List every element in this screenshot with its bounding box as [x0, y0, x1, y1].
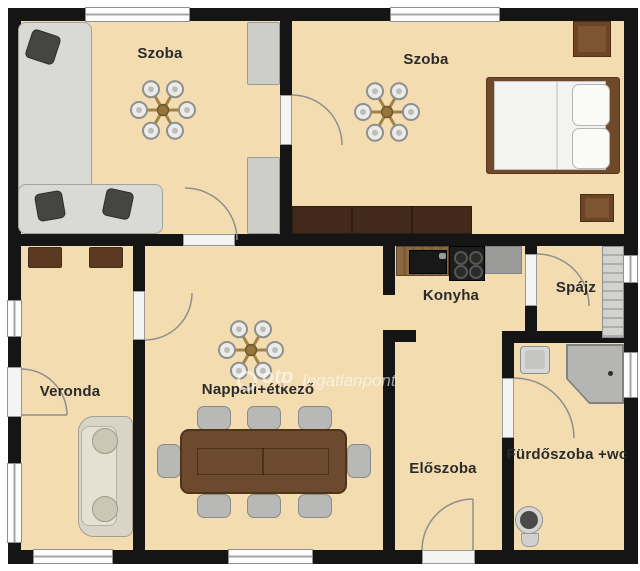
- wardrobe-upper: [247, 22, 280, 85]
- room-label-szoba-2: Szoba: [403, 51, 448, 68]
- wall-veranda-upper: [133, 246, 145, 291]
- wall-bedroom-divider-upper: [280, 21, 292, 95]
- room-label-konyha: Konyha: [423, 287, 479, 304]
- dining-chair: [347, 444, 371, 478]
- dresser-divider: [411, 207, 413, 233]
- veranda-cabinet: [28, 247, 62, 268]
- wardrobe-lower: [247, 157, 280, 234]
- room-label-eloszoba: Előszoba: [409, 460, 476, 477]
- door-leaf-bathroom: [502, 378, 514, 438]
- wall-hall-left: [383, 330, 395, 550]
- pantry-shelf: [602, 246, 624, 338]
- wall-outer-right: [624, 8, 638, 564]
- watermark-logo-icon: [237, 371, 257, 391]
- dining-chair: [247, 494, 281, 518]
- room-label-furdoszoba: Fürdőszoba +wc: [507, 446, 628, 463]
- stove-burner-icon: [454, 251, 468, 265]
- watermark-name: Ingatlanpont: [302, 371, 396, 391]
- door-leaf-pantry: [525, 254, 537, 306]
- stove-burner-icon: [469, 265, 483, 279]
- wall-kitchen-left-upper: [383, 246, 395, 295]
- faucet-icon: [439, 253, 446, 259]
- wall-bathroom-left-upper: [502, 331, 514, 378]
- dining-chair: [197, 494, 231, 518]
- room-label-veronda: Veronda: [40, 383, 101, 400]
- dresser-divider: [351, 207, 353, 233]
- veranda-sofa-pillow: [92, 496, 118, 522]
- watermark-brand: otp: [262, 366, 293, 389]
- dresser: [292, 206, 472, 234]
- wall-kitchen-bottom-stub: [383, 330, 416, 342]
- door-leaf-veranda-exterior: [7, 367, 22, 417]
- bathroom-sink-basin: [525, 350, 545, 369]
- sofa-pillow: [101, 187, 134, 220]
- bed-pillow: [572, 128, 610, 169]
- window-top-left: [85, 7, 190, 22]
- window-right-pantry: [623, 255, 638, 283]
- wall-mid-left: [8, 234, 183, 246]
- dining-chair: [247, 406, 281, 430]
- window-top-right: [390, 7, 500, 22]
- dining-chair: [298, 406, 332, 430]
- dining-chair: [197, 406, 231, 430]
- toilet-icon: [516, 507, 542, 533]
- dining-chair: [298, 494, 332, 518]
- wall-mid-right: [235, 234, 638, 246]
- door-leaf-bedroom-divider: [280, 95, 292, 145]
- door-leaf-bedroom1: [183, 234, 235, 246]
- veranda-cabinet: [89, 247, 123, 268]
- nightstand-top: [578, 26, 606, 52]
- stove-burner-icon: [454, 265, 468, 279]
- floorplan: Szoba Szoba Konyha Spájz Veronda Nappali…: [0, 0, 640, 571]
- window-right-bathroom: [623, 352, 638, 398]
- veranda-sofa-pillow: [92, 428, 118, 454]
- shower-drain-icon: [608, 371, 613, 376]
- room-label-spajz: Spájz: [556, 279, 596, 296]
- room-label-nappali: Nappali+étkező: [202, 381, 314, 398]
- dining-table-seam: [262, 448, 264, 475]
- window-bottom-veranda: [33, 549, 113, 564]
- wall-pantry-left-upper: [525, 246, 537, 254]
- window-left-upper: [7, 300, 22, 337]
- bed-blanket-fold: [556, 82, 558, 169]
- room-label-szoba-1: Szoba: [137, 45, 182, 62]
- nightstand-top: [585, 198, 609, 218]
- door-leaf-veranda-living: [133, 291, 145, 340]
- sofa-pillow: [34, 190, 66, 222]
- dining-chair: [157, 444, 181, 478]
- wall-veranda-lower: [133, 340, 145, 550]
- wall-bedroom-divider-lower: [280, 145, 292, 234]
- door-leaf-entrance: [422, 550, 475, 564]
- window-bottom-living: [228, 549, 313, 564]
- window-left-lower: [7, 463, 22, 543]
- stove: [449, 246, 485, 281]
- toilet-base: [521, 533, 539, 547]
- bed-pillow: [572, 84, 610, 126]
- stove-burner-icon: [469, 251, 483, 265]
- kitchen-counter-stone: [485, 246, 522, 274]
